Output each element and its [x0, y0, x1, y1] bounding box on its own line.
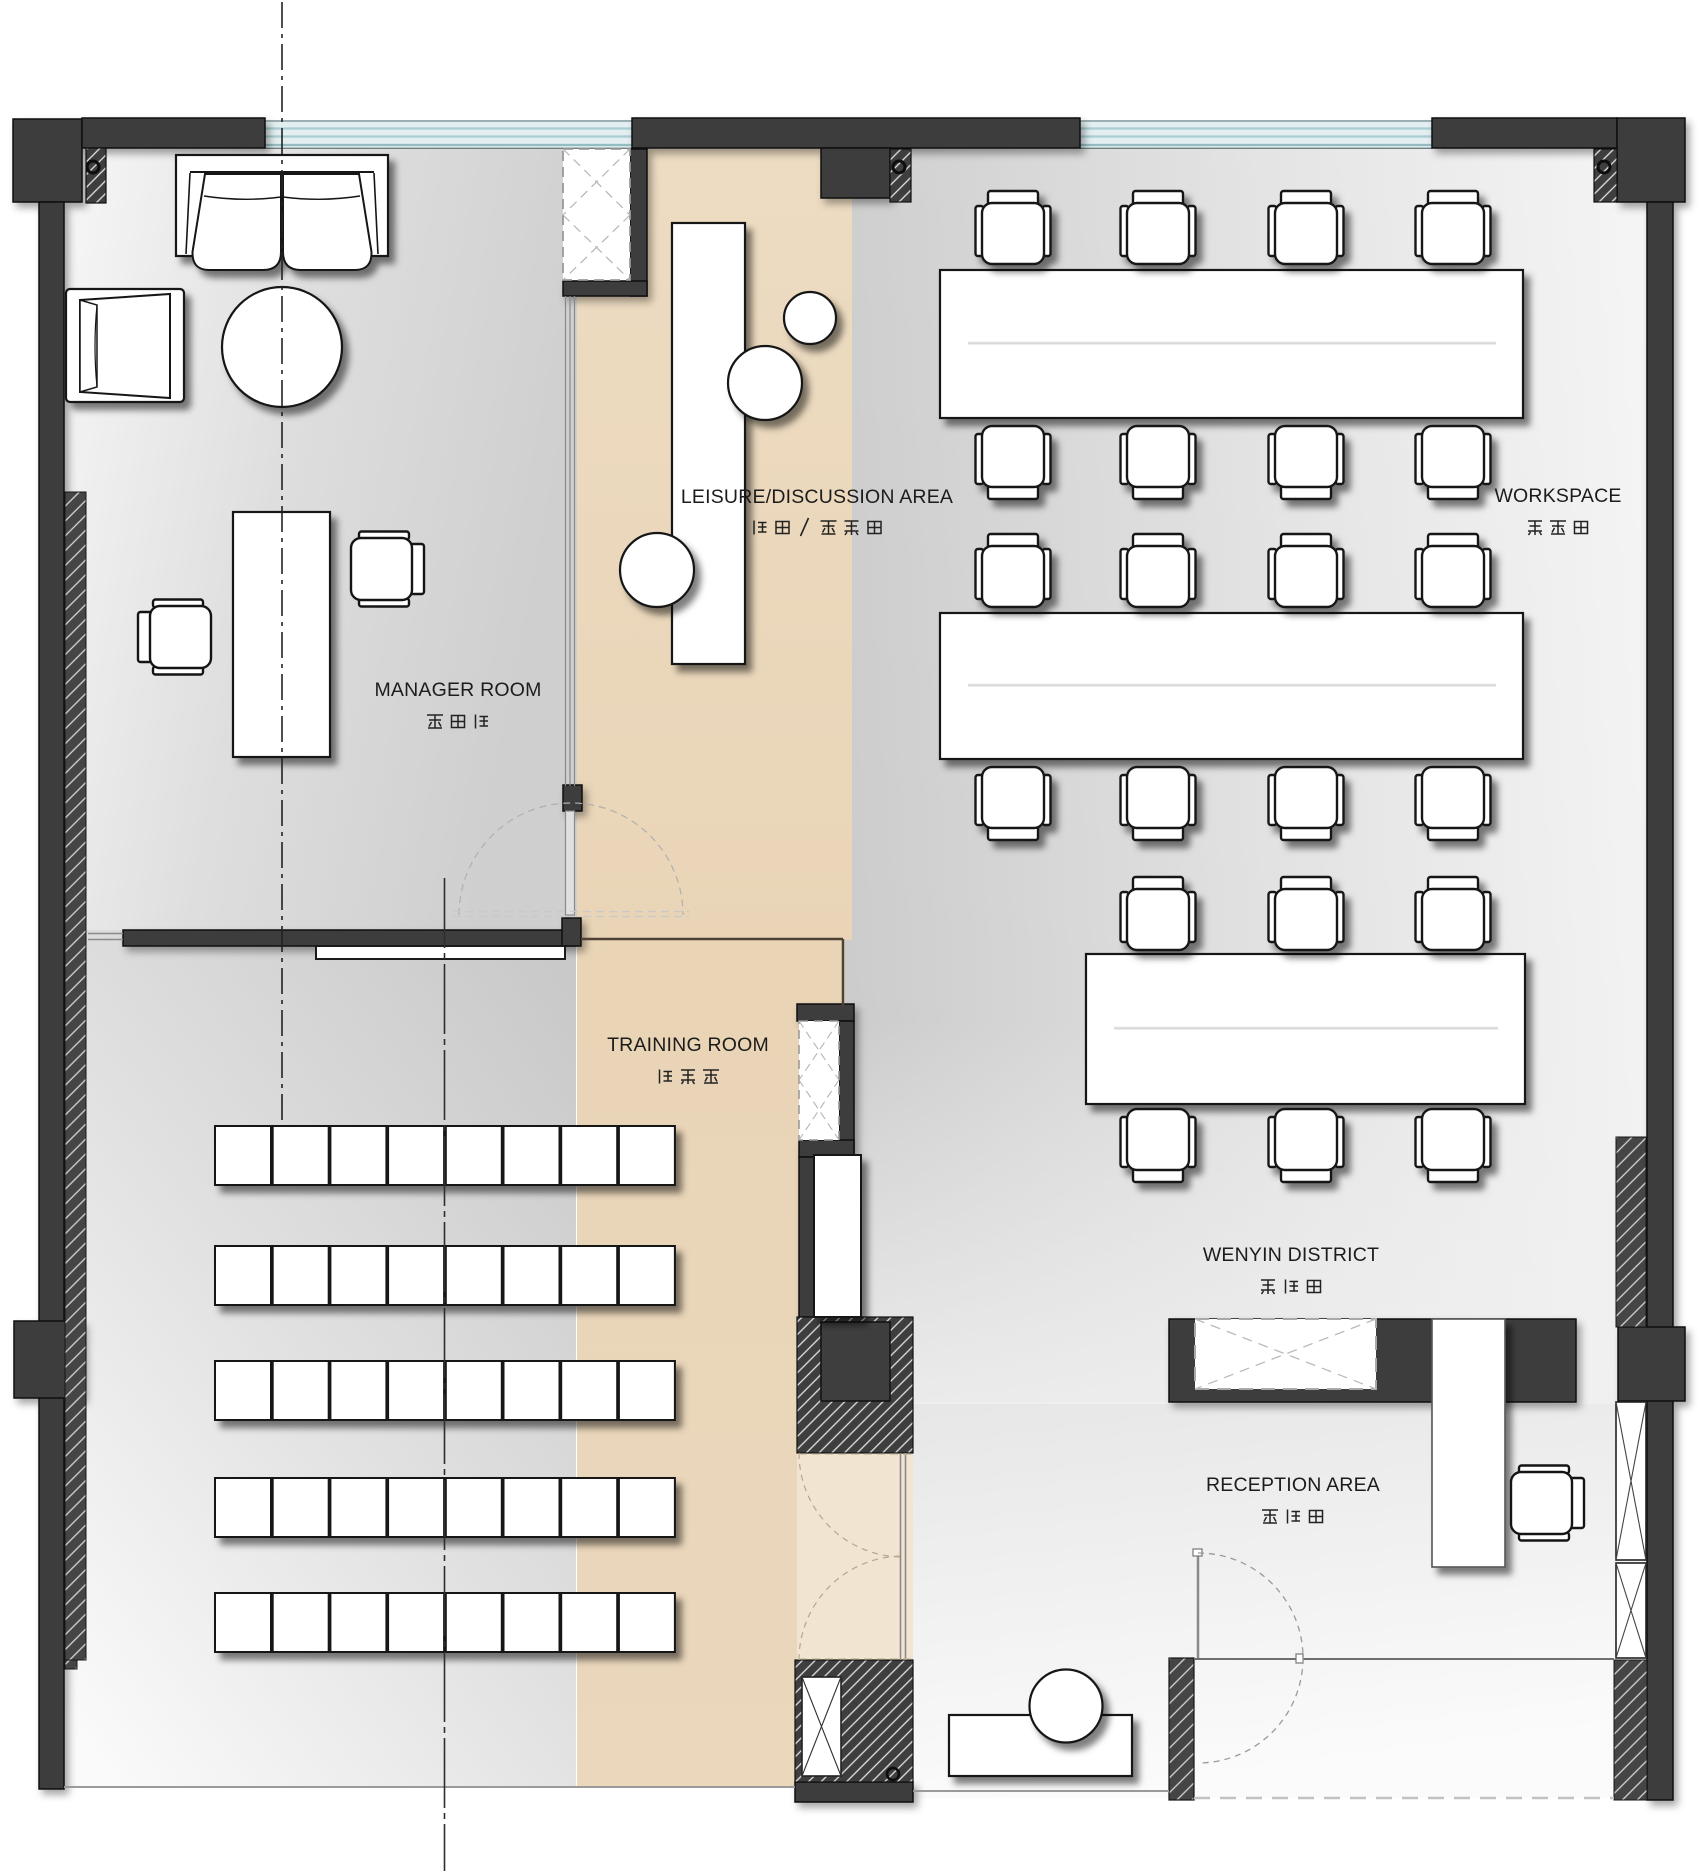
svg-text:RECEPTION AREA: RECEPTION AREA: [1206, 1474, 1380, 1496]
svg-text:LEISURE/DISCUSSION AREA: LEISURE/DISCUSSION AREA: [681, 486, 953, 508]
svg-text:WENYIN DISTRICT: WENYIN DISTRICT: [1203, 1244, 1379, 1266]
svg-text:TRAINING ROOM: TRAINING ROOM: [607, 1034, 769, 1056]
svg-text:WORKSPACE: WORKSPACE: [1494, 485, 1621, 507]
svg-text:MANAGER ROOM: MANAGER ROOM: [374, 679, 541, 701]
